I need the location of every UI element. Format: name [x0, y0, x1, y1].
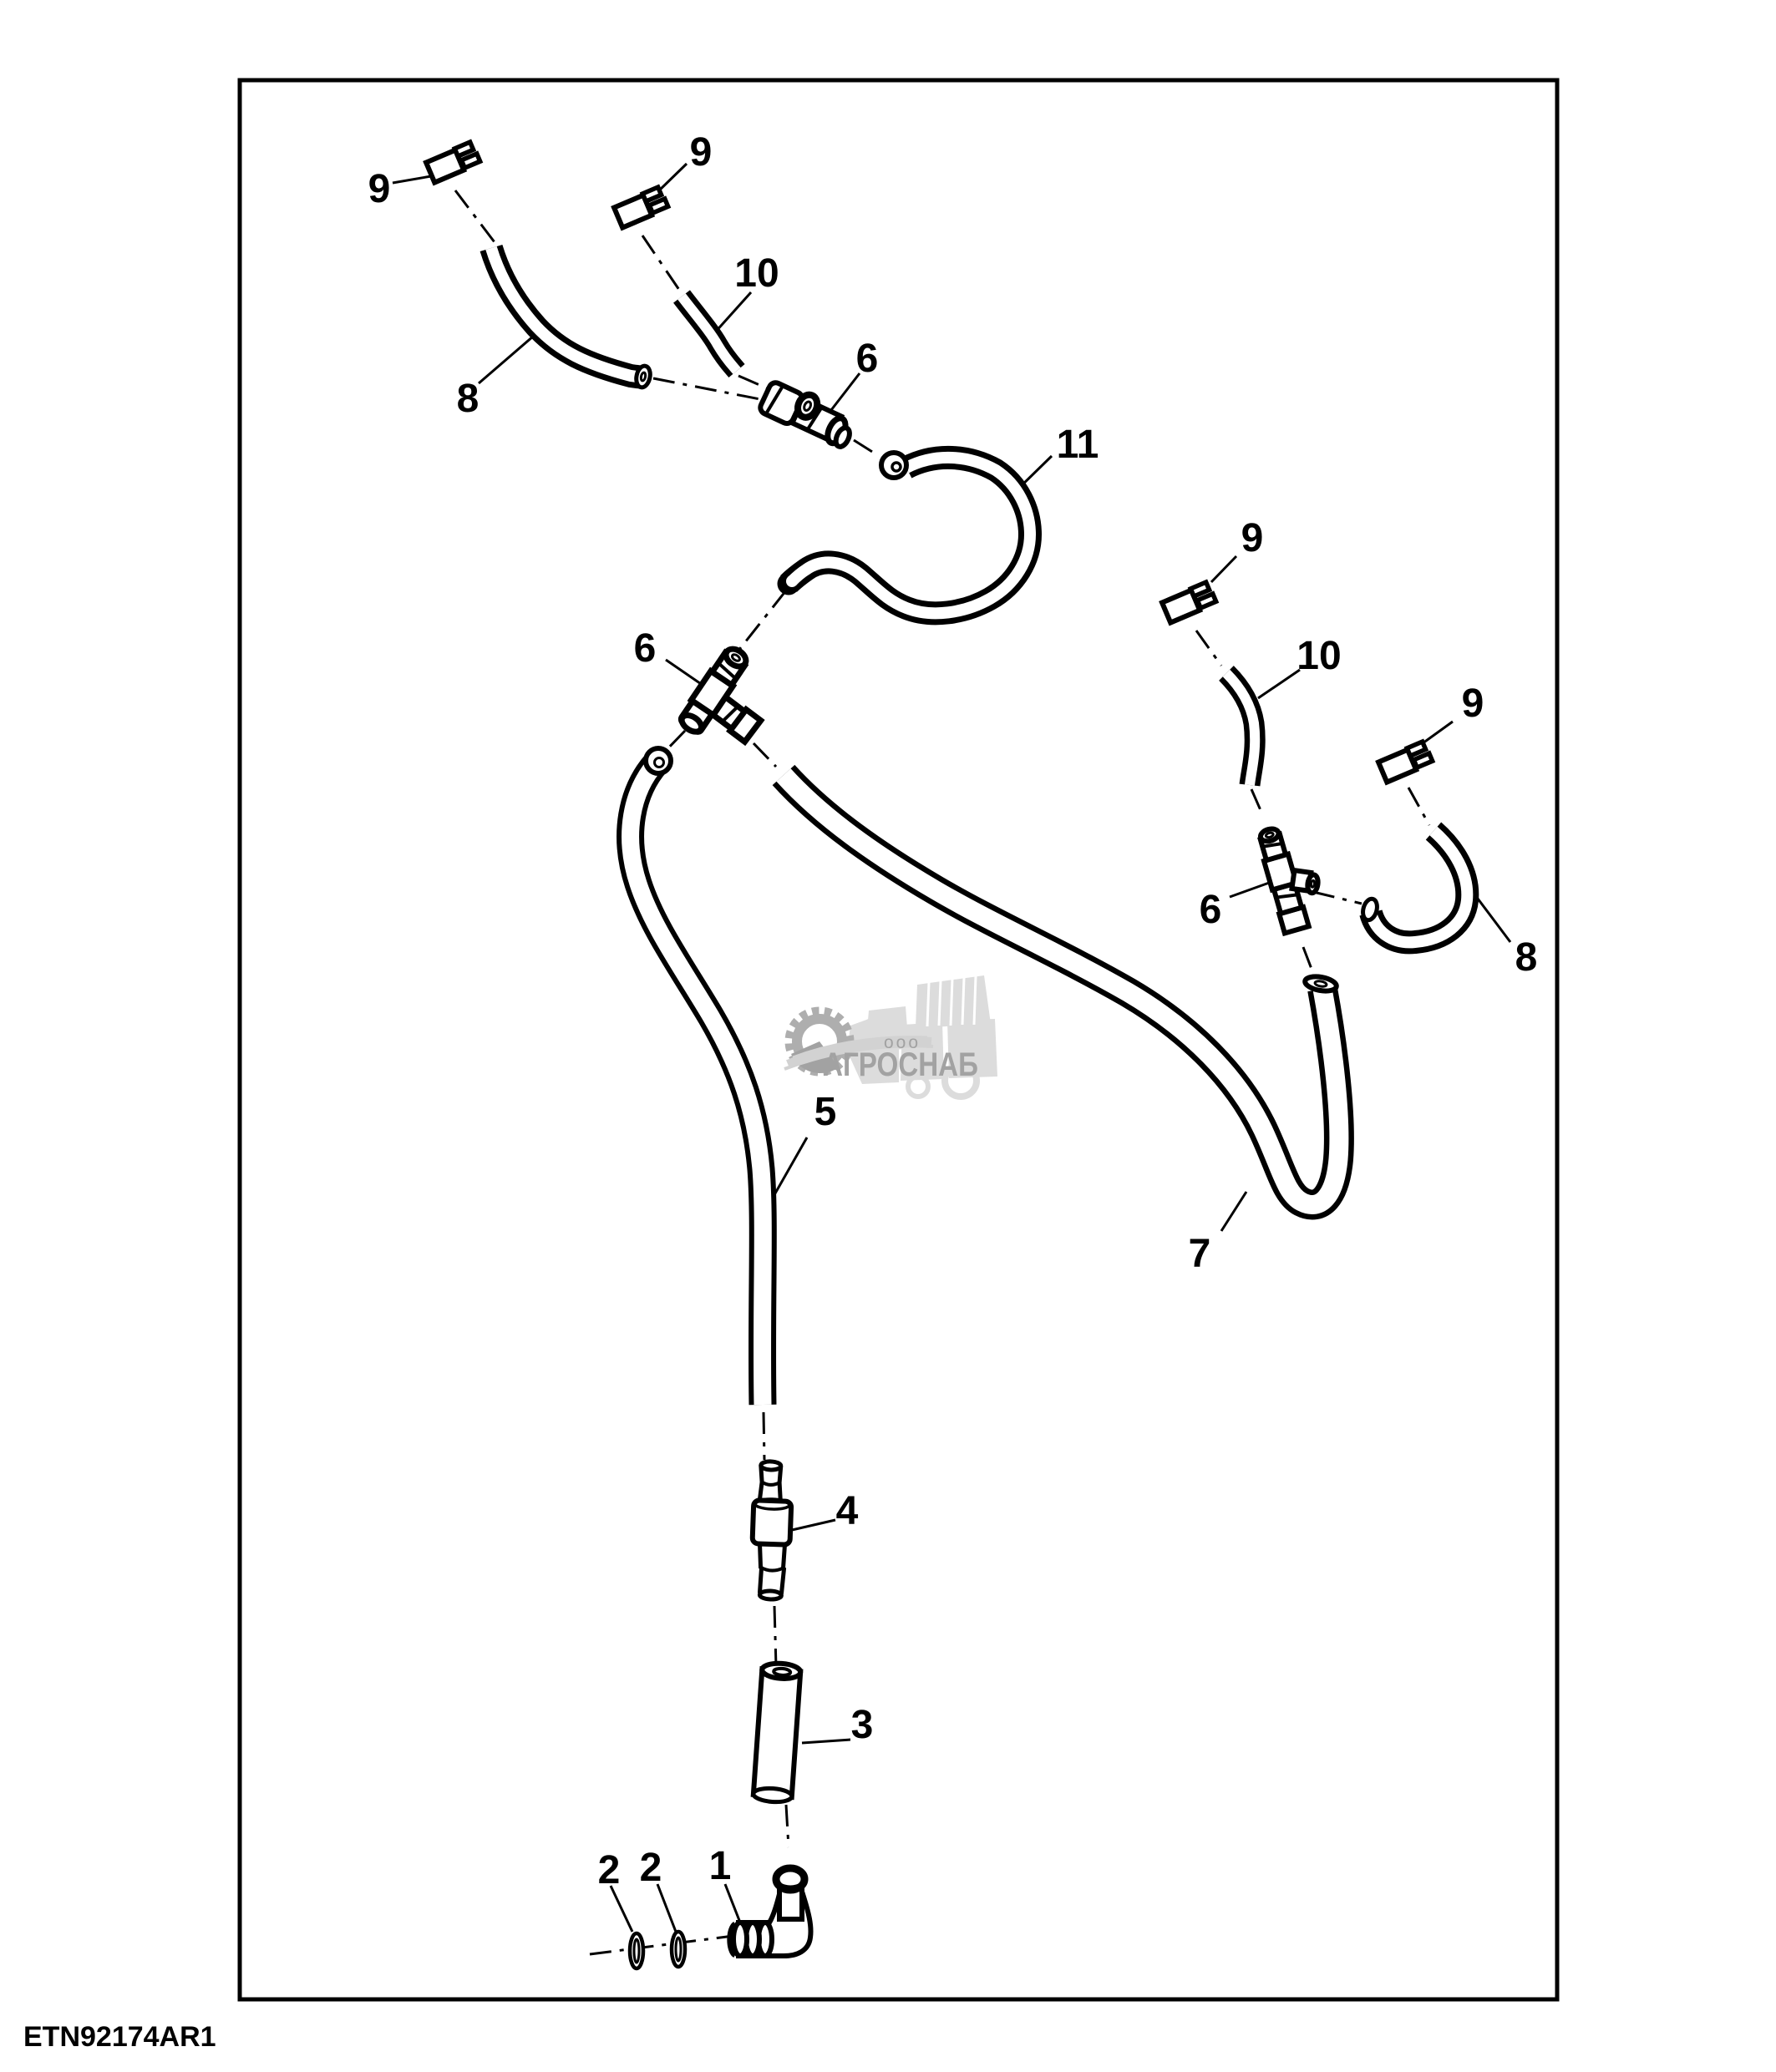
svg-text:2: 2 [640, 1846, 662, 1890]
svg-text:6: 6 [634, 626, 657, 671]
svg-text:10: 10 [734, 251, 779, 296]
svg-text:10: 10 [1296, 634, 1341, 678]
svg-text:ETN92174AR1: ETN92174AR1 [23, 2021, 216, 2053]
svg-text:8: 8 [457, 377, 480, 421]
svg-text:1: 1 [709, 1844, 732, 1888]
svg-text:2: 2 [598, 1848, 621, 1892]
svg-text:9: 9 [1462, 681, 1484, 726]
svg-text:8: 8 [1515, 935, 1538, 980]
svg-text:9: 9 [690, 130, 713, 175]
svg-text:7: 7 [1189, 1232, 1211, 1276]
svg-text:6: 6 [1200, 888, 1222, 932]
svg-text:3: 3 [851, 1703, 874, 1747]
svg-text:6: 6 [856, 337, 879, 381]
svg-text:АГРОСНАБ: АГРОСНАБ [823, 1046, 978, 1083]
svg-text:4: 4 [836, 1489, 859, 1533]
svg-text:5: 5 [814, 1090, 837, 1134]
svg-text:9: 9 [1241, 516, 1264, 560]
svg-text:11: 11 [1057, 423, 1099, 467]
svg-text:9: 9 [368, 167, 391, 211]
